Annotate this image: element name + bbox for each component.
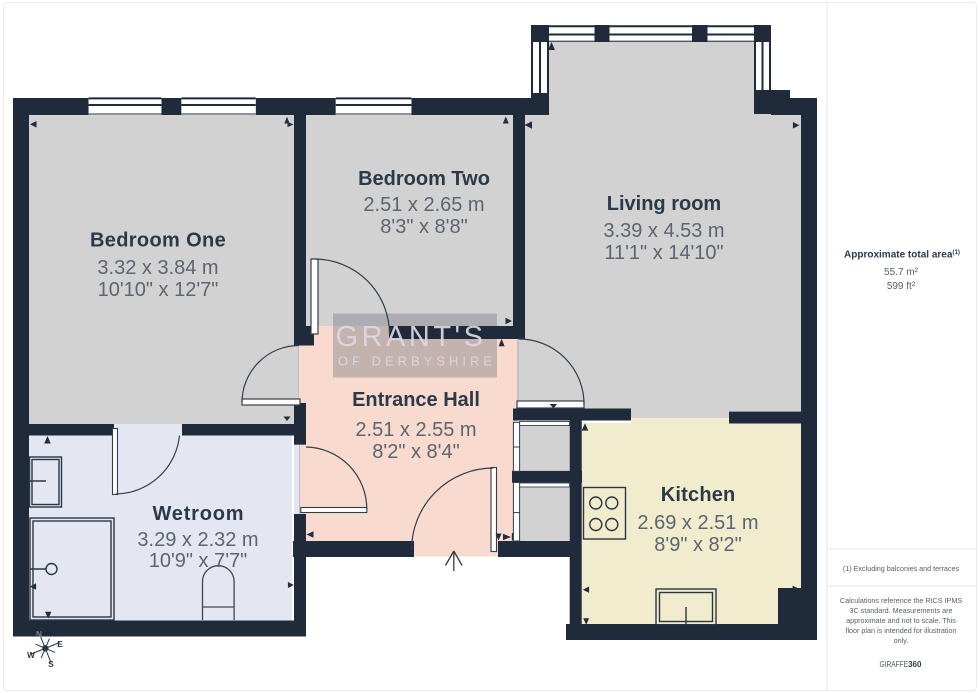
- svg-text:3.29 x 2.32 m: 3.29 x 2.32 m: [137, 529, 258, 551]
- svg-text:Bedroom One: Bedroom One: [90, 230, 226, 252]
- svg-text:GIRAFFE360: GIRAFFE360: [880, 660, 923, 669]
- svg-text:S: S: [48, 660, 54, 669]
- svg-text:10'9" x 7'7": 10'9" x 7'7": [149, 550, 248, 572]
- svg-text:55.7 m²: 55.7 m²: [884, 267, 919, 278]
- svg-text:W: W: [27, 651, 35, 660]
- svg-text:10'10" x 12'7": 10'10" x 12'7": [98, 279, 219, 301]
- svg-text:2.69 x 2.51 m: 2.69 x 2.51 m: [637, 512, 758, 534]
- svg-text:Calculations reference the RIC: Calculations reference the RICS IPMS: [840, 596, 962, 605]
- svg-text:N: N: [36, 630, 42, 639]
- svg-text:E: E: [57, 640, 63, 649]
- svg-text:Living room: Living room: [607, 193, 721, 215]
- svg-text:Wetroom: Wetroom: [153, 503, 244, 525]
- svg-text:Bedroom Two: Bedroom Two: [358, 168, 490, 190]
- svg-text:8'9" x 8'2": 8'9" x 8'2": [654, 534, 741, 556]
- svg-text:floor plan is intended for ill: floor plan is intended for illustration: [845, 626, 956, 635]
- svg-text:approximate and not to scale.: approximate and not to scale. This: [846, 616, 956, 625]
- svg-text:8'3" x 8'8": 8'3" x 8'8": [380, 216, 467, 238]
- svg-text:3C standard. Measurements are: 3C standard. Measurements are: [849, 606, 952, 615]
- svg-text:GRANT'S: GRANT'S: [336, 321, 487, 353]
- svg-text:OF DERBYSHIRE: OF DERBYSHIRE: [338, 354, 496, 369]
- svg-text:Kitchen: Kitchen: [661, 484, 736, 506]
- svg-text:3.39 x 4.53 m: 3.39 x 4.53 m: [603, 220, 724, 242]
- svg-text:Approximate total area(1): Approximate total area(1): [844, 249, 960, 261]
- svg-text:3.32 x 3.84 m: 3.32 x 3.84 m: [97, 257, 218, 279]
- svg-text:599 ft²: 599 ft²: [887, 281, 916, 292]
- svg-text:2.51 x 2.65 m: 2.51 x 2.65 m: [363, 194, 484, 216]
- svg-text:(1) Excluding balconies and te: (1) Excluding balconies and terraces: [843, 564, 960, 573]
- svg-text:only.: only.: [894, 636, 909, 645]
- svg-text:8'2" x 8'4": 8'2" x 8'4": [372, 441, 459, 463]
- svg-text:11'1" x 14'10": 11'1" x 14'10": [604, 242, 723, 264]
- svg-text:2.51 x 2.55 m: 2.51 x 2.55 m: [355, 419, 476, 441]
- svg-text:Entrance Hall: Entrance Hall: [352, 389, 480, 411]
